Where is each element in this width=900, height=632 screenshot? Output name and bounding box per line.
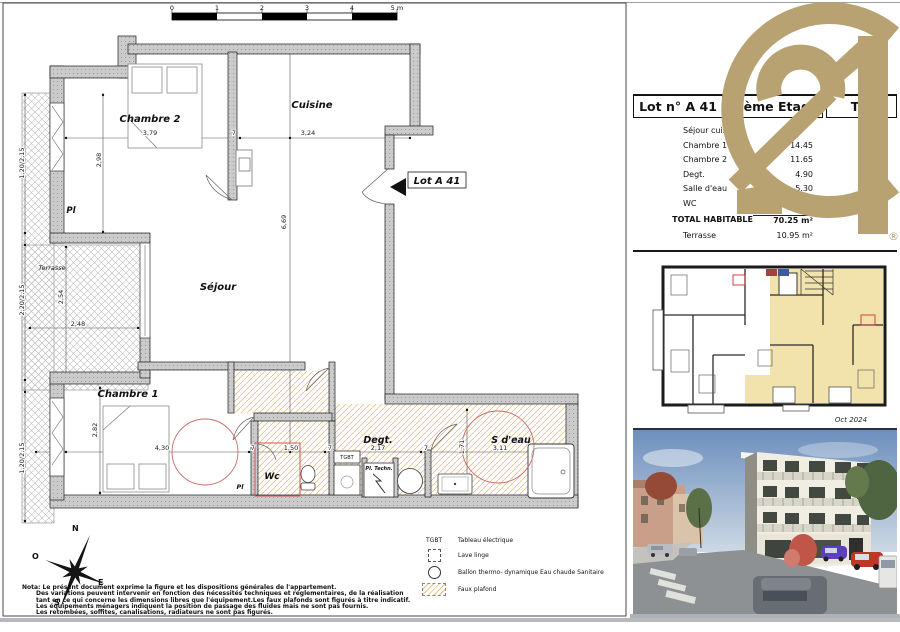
washer-symbol — [428, 549, 441, 562]
scale-label-3: 3 — [305, 4, 309, 12]
dim-label-2,82: 2,82 — [91, 423, 99, 437]
dim-label-7: 7 — [232, 129, 236, 137]
thumbnail-date: Oct 2024 — [835, 416, 867, 424]
dim-label-2,54: 2,54 — [57, 290, 65, 304]
room-label-pl-techn: Pl. Techn. — [365, 466, 392, 472]
compass-label-o: O — [32, 552, 39, 561]
shower — [528, 444, 574, 498]
room-label-degt: Degt. — [363, 435, 392, 446]
dim-label-6,69: 6,69 — [280, 215, 288, 229]
scale-bar: 012345 m — [170, 4, 403, 20]
red-tree — [645, 472, 677, 500]
car-gray-foreground — [753, 576, 827, 614]
legend-item-label: Tableau électrique — [458, 537, 513, 544]
room-label-wc: Wc — [264, 472, 280, 482]
car-red — [851, 552, 883, 570]
century21-logo: ® — [630, 0, 900, 250]
floor-thumbnail: Oct 2024 — [633, 255, 897, 427]
water-heater — [398, 469, 423, 494]
dim-label-2,20/2,15: 2,20/2,15 — [18, 284, 26, 315]
scale-label-5 m: 5 m — [391, 4, 404, 12]
scale-label-2: 2 — [260, 4, 264, 12]
dim-label-3,24: 3,24 — [301, 129, 315, 137]
dim-label-1,20/2,15: 1,20/2,15 — [18, 147, 26, 178]
logo-digit-1-flag — [832, 42, 858, 90]
room-label-chambre-2: Chambre 2 — [120, 114, 181, 125]
building-photo — [633, 428, 897, 616]
room-label-chambre-1: Chambre 1 — [98, 389, 159, 400]
legend-item-label: Lave linge — [458, 552, 489, 559]
car-white — [879, 556, 897, 588]
dim-label-3,79: 3,79 — [143, 129, 157, 137]
table-bottom-rule — [633, 250, 897, 252]
scale-label-4: 4 — [350, 4, 354, 12]
dim-label-2,98: 2,98 — [95, 153, 103, 167]
dim-label-1,71: 1,71 — [458, 440, 466, 454]
washing-machine — [334, 465, 360, 495]
room-label-pl-2: Pl — [237, 483, 245, 491]
dim-label-1,50: 1,50 — [284, 444, 298, 452]
room-label-tgbt: TGBT — [339, 455, 354, 461]
room-label-terrasse: Terrasse — [38, 264, 65, 272]
notes: Nota: Le présent document exprime la fig… — [22, 585, 482, 616]
note-line: Les retombées, soffites, canalisations, … — [22, 610, 482, 616]
scale-label-0: 0 — [170, 4, 174, 12]
page-sheet: { "scale_bar": { "labels": ["0","1","2",… — [0, 0, 900, 632]
room-label-sejour: Séjour — [200, 281, 237, 293]
dim-label-7: 7 — [424, 444, 428, 452]
tgbt-symbol-label: TGBT — [426, 537, 442, 544]
dim-label-7: 7 — [328, 444, 332, 452]
entrance-arrow-icon — [390, 178, 406, 196]
room-label-s-deau: S d'eau — [491, 435, 531, 446]
room-label-pl-1: Pl — [66, 206, 76, 216]
boiler-symbol — [428, 566, 441, 579]
photo-bottom-band — [630, 614, 900, 618]
thumbnail-elevator — [779, 273, 797, 295]
toilet — [301, 466, 315, 483]
logo-registered: ® — [888, 230, 899, 243]
compass-label-n: N — [72, 524, 79, 533]
logo-digit-2-diagonal — [735, 93, 830, 186]
logo-digit-1-stem — [858, 36, 888, 234]
legend-item-label: Ballon thermo- dynamique Eau chaude Sani… — [458, 569, 604, 576]
dim-label-2,48: 2,48 — [71, 320, 85, 328]
scale-label-1: 1 — [215, 4, 219, 12]
room-label-lot-tag: Lot A 41 — [414, 176, 461, 187]
dim-label-7: 7 — [251, 444, 255, 452]
room-label-cuisine: Cuisine — [291, 100, 332, 111]
dim-label-1,20/2,15: 1,20/2,15 — [18, 442, 26, 473]
dim-label-4,30: 4,30 — [155, 444, 169, 452]
